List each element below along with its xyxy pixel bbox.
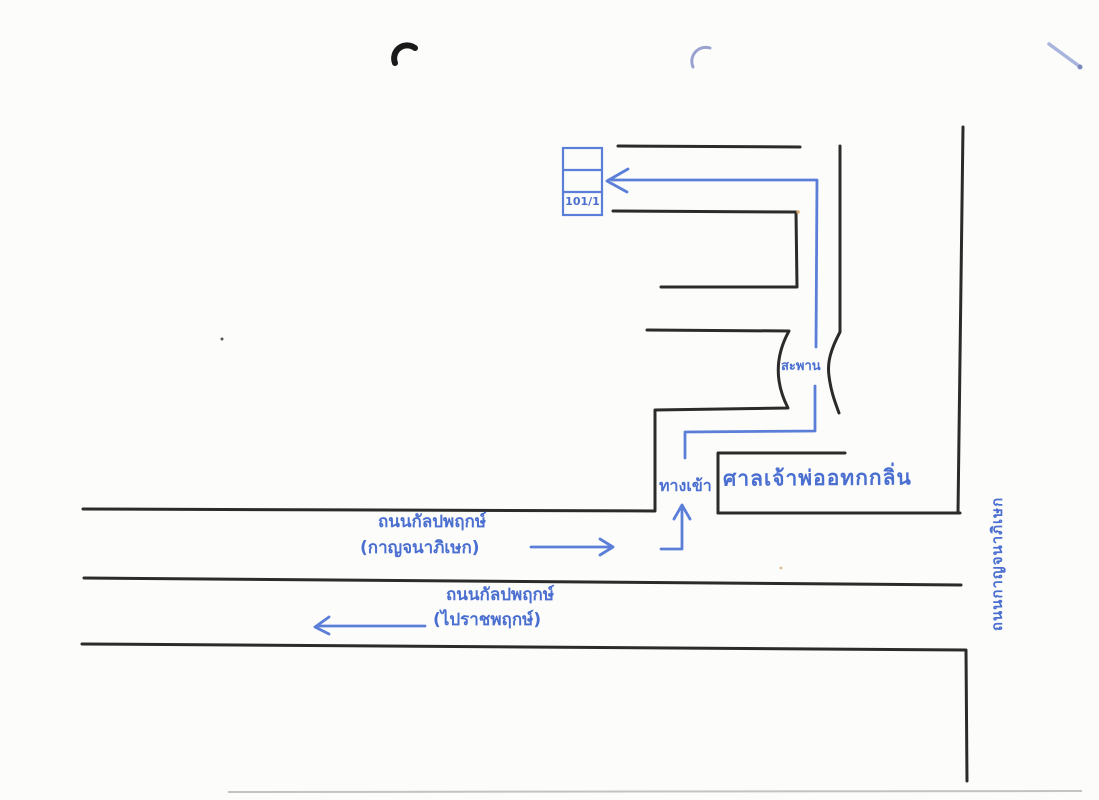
road1-bottom-edge: [84, 578, 961, 585]
shrine-label: ศาลเจ้าพ่ออทกกลิ่น: [723, 466, 912, 490]
road-kalpapruek-east-name-label: ถนนกัลปพฤกษ์: [378, 513, 486, 532]
pen-stray-dot: [1078, 65, 1083, 70]
map-line-art: [0, 0, 1099, 800]
road-kanchanaphisek-vertical-label: ถนนกาญจนาภิเษก: [989, 489, 1009, 639]
road-kalpapruek-east-direction-label: (กาญจนาภิเษก): [360, 539, 480, 558]
bridge-right-curve: [828, 146, 840, 413]
route-entrance-up-arrow: [661, 508, 682, 549]
entrance-label: ทางเข้า: [659, 477, 712, 495]
bridge-label: สะพาน: [781, 360, 821, 374]
hole-punch-faint-icon: [692, 47, 710, 67]
kanchanaphisek-road-edge: [958, 127, 963, 513]
scanned-hand-drawn-map: 101/1 สะพาน ทางเข้า ศาลเจ้าพ่ออทกกลิ่น ถ…: [0, 0, 1099, 800]
soi-upper-line: [618, 146, 800, 147]
road2-top-edge: [82, 644, 967, 781]
speck-3: [780, 567, 783, 570]
road-kalpapruek-west-name-label: ถนนกัลปพฤกษ์: [446, 586, 554, 605]
route-line-bridge-to-entrance: [685, 386, 815, 458]
route-line-to-house: [612, 180, 817, 347]
road-kalpapruek-west-direction-label: (ไปราชพฤกษ์): [433, 611, 541, 630]
pen-stray-mark: [1049, 44, 1079, 66]
house-number-label: 101/1: [564, 196, 601, 208]
speck-1: [221, 338, 224, 341]
page-bottom-edge: [228, 791, 1082, 792]
speck-2: [796, 210, 800, 214]
block-outline: [613, 211, 797, 287]
hole-punch-icon: [394, 45, 415, 63]
